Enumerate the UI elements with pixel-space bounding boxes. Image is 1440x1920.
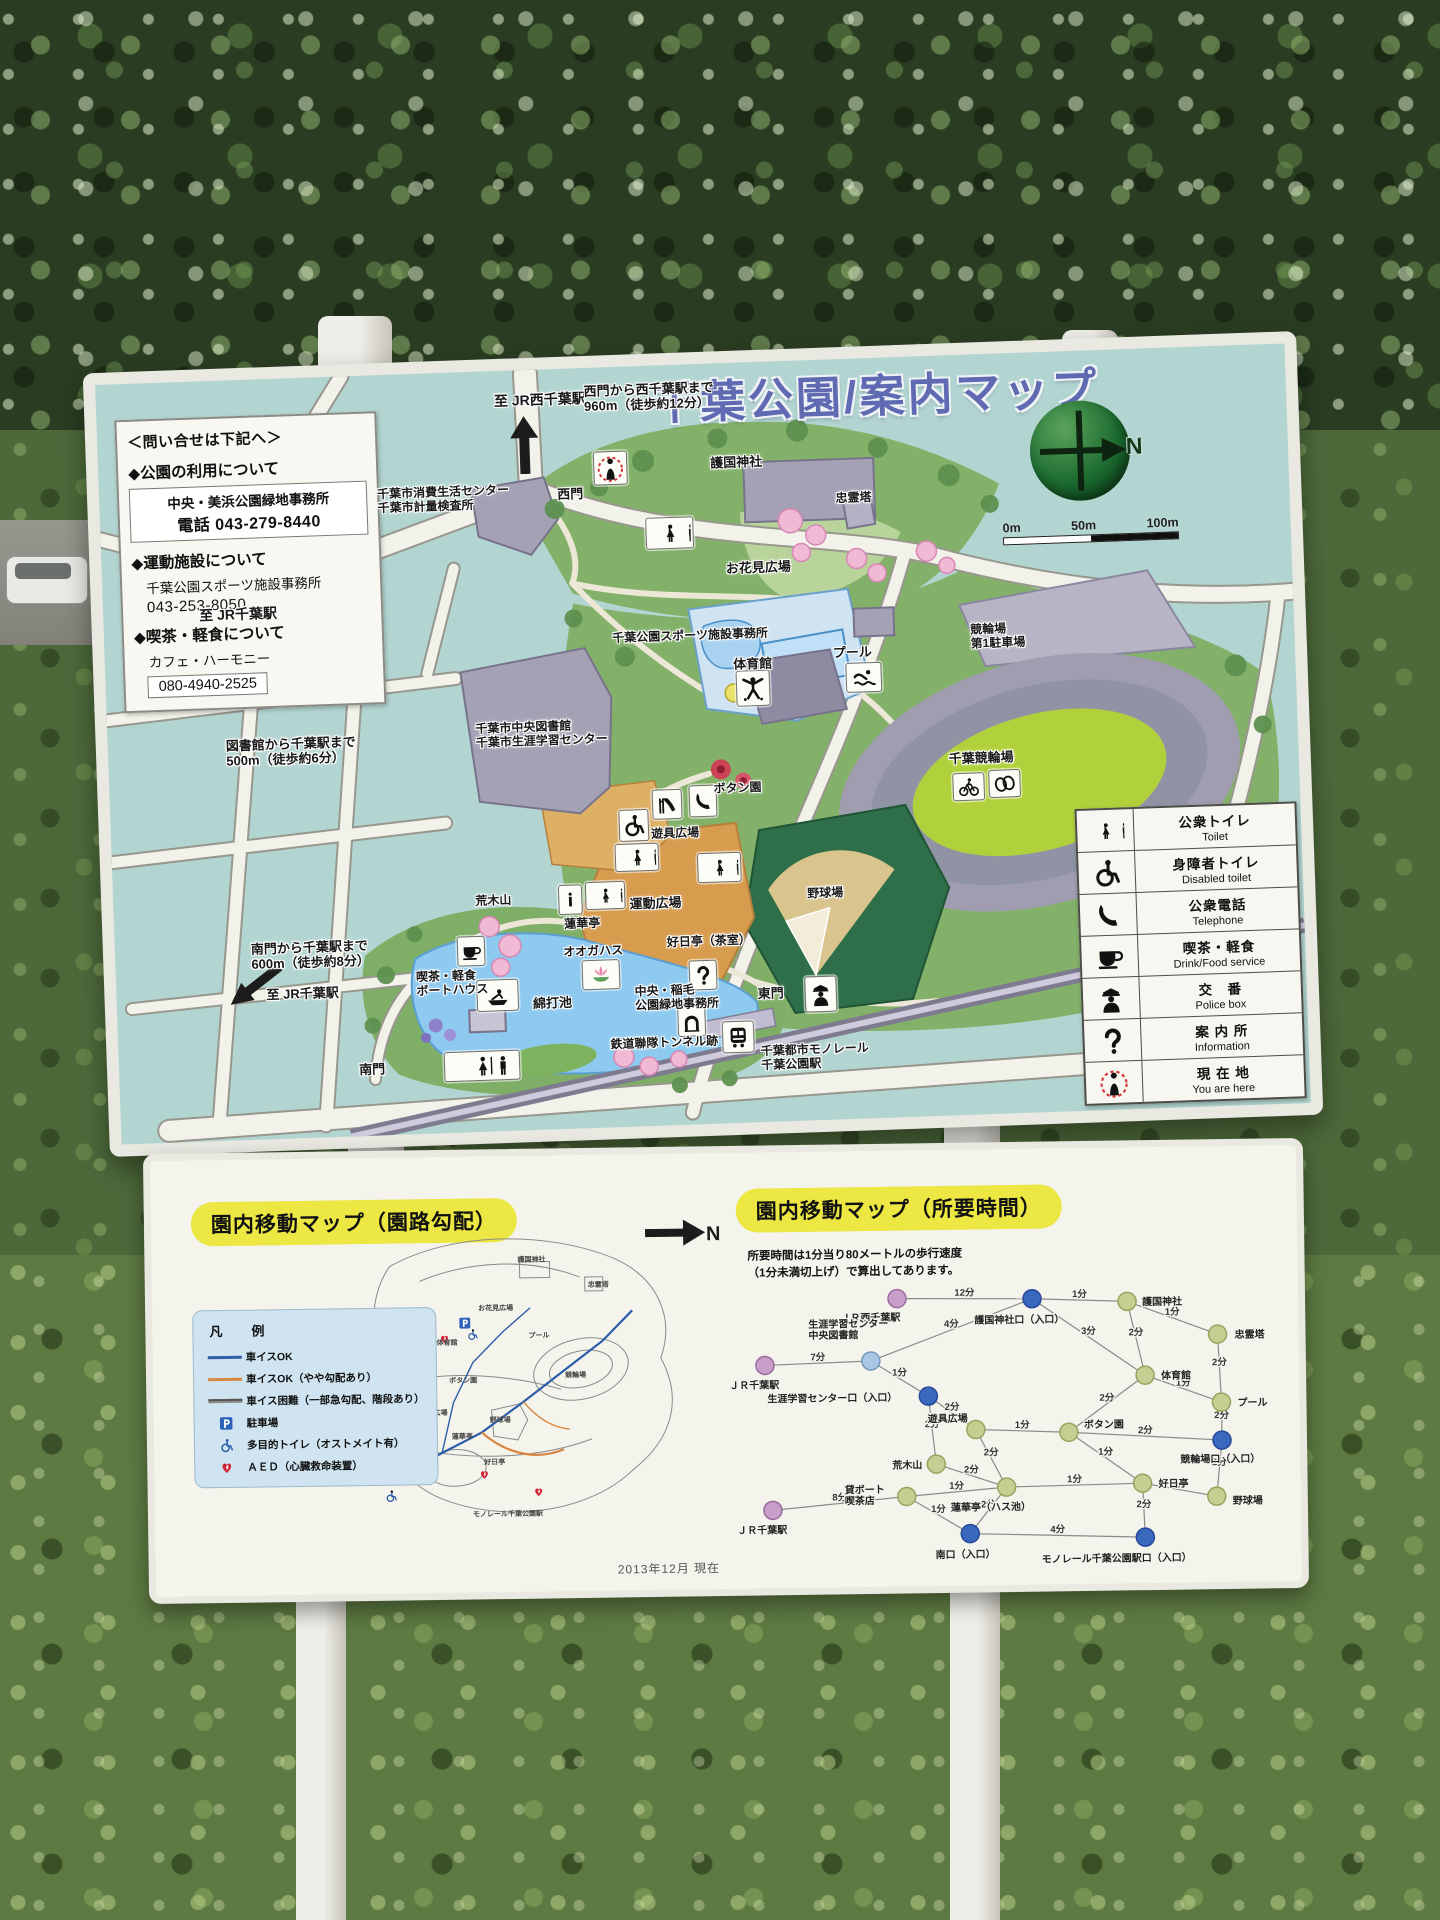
north-direction-arrow — [508, 416, 540, 475]
network-node-entrance — [1136, 1528, 1154, 1546]
network-node-entrance — [919, 1387, 937, 1405]
monorail-station-icon — [722, 1020, 755, 1053]
network-edge-minutes: 2分 — [964, 1463, 979, 1475]
minimap-label: 忠霊塔 — [588, 1280, 610, 1289]
you-are-here-icon — [593, 450, 628, 485]
network-node-landmark — [862, 1352, 880, 1370]
drink-food-icon — [1081, 935, 1139, 978]
network-node-station — [756, 1356, 774, 1374]
drink-food-icon — [457, 936, 486, 967]
parking-icon — [205, 1415, 247, 1431]
network-node-entrance — [1213, 1431, 1231, 1449]
map-label: プール — [833, 644, 873, 661]
network-node-label: 護国神社 — [1142, 1295, 1182, 1309]
network-node-label: 荒木山 — [891, 1458, 922, 1471]
network-edge-minutes: 2分 — [984, 1446, 999, 1458]
toilet-icon — [645, 516, 694, 550]
network-node-facility — [1118, 1292, 1136, 1310]
toilet-icon — [1077, 809, 1135, 852]
track-wheels-icon — [988, 769, 1021, 798]
contact-section-title: ◆公園の利用について — [128, 454, 367, 484]
map-label: 遊具広場 — [651, 825, 699, 841]
minimap-label: ボタン園 — [449, 1375, 477, 1384]
network-edge-minutes: 1分 — [1098, 1446, 1113, 1458]
minimap-label: プール — [528, 1330, 549, 1339]
minimap-label: 蓮華亭 — [452, 1432, 473, 1441]
network-edge-minutes: 2分 — [945, 1401, 960, 1413]
slope-legend-panel: 凡 例 車イスOK 車イスOK（やや勾配あり） 車イス困難（一部急勾配、階段あり… — [192, 1307, 438, 1488]
map-legend-table: 公衆トイレToilet 身障者トイレDisabled toilet 公衆電話Te… — [1074, 801, 1306, 1106]
network-node-label: 競輪場口（入口） — [1180, 1452, 1260, 1466]
map-label: 千葉都市モノレール 千葉公園駅 — [761, 1040, 870, 1072]
map-label: 南門 — [359, 1061, 386, 1077]
map-label: ボタン園 — [713, 780, 761, 796]
map-label: 至 JR西千葉駅 — [494, 390, 586, 410]
network-node-station — [888, 1289, 906, 1307]
map-label: 荒木山 — [475, 893, 511, 908]
network-node-station — [764, 1501, 782, 1519]
network-edge-minutes: 1分 — [931, 1503, 946, 1515]
network-edge-minutes: 1分 — [1015, 1419, 1030, 1431]
toilet-wheelchair-icon — [444, 1050, 521, 1083]
network-node-label: 遊具広場 — [928, 1412, 968, 1426]
network-node-entrance — [961, 1524, 979, 1542]
wheelchair-slope-line — [204, 1377, 246, 1381]
aed-icon — [205, 1459, 247, 1475]
network-node-label: ボタン園 — [1084, 1417, 1124, 1431]
map-label: 綿打池 — [533, 995, 573, 1012]
park-sign-photo: 千葉公園/案内マップ ＜問い合せは下記へ＞ ◆公園の利用について 中央・美浜公園… — [0, 0, 1440, 1920]
wheelchair-difficult-line — [204, 1399, 246, 1404]
cyclist-icon — [952, 772, 985, 801]
you-are-here-icon — [1085, 1061, 1143, 1104]
network-node-label: 野球場 — [1233, 1494, 1263, 1507]
network-edge-minutes: 1分 — [949, 1480, 964, 1492]
information-icon — [558, 884, 583, 915]
network-node-entrance — [1023, 1290, 1041, 1308]
network-node-label: モノレール千葉公園駅口（入口） — [1042, 1551, 1192, 1566]
network-node-label: プール — [1237, 1395, 1267, 1408]
parked-car — [6, 556, 88, 604]
network-node-facility — [998, 1478, 1016, 1496]
network-node-facility — [927, 1455, 945, 1473]
minimap-label: 好日亭 — [483, 1457, 505, 1466]
map-label: 東門 — [757, 985, 784, 1001]
map-label: 西門 — [557, 486, 584, 502]
map-label: 中央・稲毛 公園緑地事務所 — [634, 982, 719, 1013]
network-node-label: 好日亭 — [1158, 1477, 1189, 1490]
network-node-label: 生涯学習センター中央図書館 — [808, 1317, 888, 1342]
network-edge-minutes: 1分 — [892, 1366, 907, 1378]
network-node-facility — [1208, 1325, 1226, 1343]
minimap-label: 競輪場 — [565, 1370, 586, 1379]
map-label: 護国神社 — [710, 454, 763, 471]
walking-time-map-sign: 園内移動マップ（園路勾配） 園内移動マップ（所要時間） N 所要時間は1分当り8… — [143, 1138, 1309, 1604]
map-label: 千葉市消費生活センター 千葉市計量検査所 — [377, 483, 510, 516]
network-edge-minutes: 3分 — [1081, 1325, 1096, 1337]
network-edge-minutes: 2分 — [1212, 1356, 1227, 1368]
network-node-facility — [1208, 1487, 1226, 1505]
lotus-icon — [581, 959, 620, 990]
compass-north-label: N — [1125, 432, 1143, 460]
gymnast-icon — [735, 670, 770, 707]
map-label: 西門から西千葉駅まで 960m（徒歩約12分） — [583, 379, 714, 414]
information-icon — [1084, 1019, 1142, 1062]
network-node-facility — [1133, 1474, 1151, 1492]
network-edge-minutes: 2分 — [1138, 1424, 1153, 1436]
network-edge-minutes: 1分 — [1072, 1288, 1087, 1300]
minimap-label: 護国神社 — [517, 1255, 545, 1264]
wheelchair-icon — [618, 809, 649, 842]
map-label: お花見広場 — [726, 559, 792, 577]
network-edge-minutes: 2分 — [1136, 1498, 1151, 1510]
network-edge-minutes: 2分 — [1099, 1392, 1114, 1404]
wheelchair-ok-line — [204, 1355, 246, 1359]
slide-icon — [652, 789, 683, 820]
network-node-label: ＪＲ千葉駅 — [737, 1523, 788, 1537]
network-edge-minutes: 12分 — [954, 1287, 975, 1299]
map-label: 忠霊塔 — [835, 490, 871, 505]
network-edge-minutes: 4分 — [944, 1318, 959, 1330]
network-node-facility — [1060, 1423, 1078, 1441]
network-node-label: 体育館 — [1161, 1369, 1191, 1382]
network-node-facility — [1212, 1393, 1230, 1411]
network-node-label: 生涯学習センター口（入口） — [767, 1391, 897, 1406]
disabled-toilet-icon — [1078, 851, 1136, 894]
compass-icon — [1028, 399, 1131, 502]
map-label: 競輪場 第1駐車場 — [970, 621, 1026, 651]
network-edge-minutes: 4分 — [1050, 1523, 1065, 1535]
network-node-facility — [1136, 1366, 1154, 1384]
network-node-facility — [967, 1420, 985, 1438]
contact-info-box: ＜問い合せは下記へ＞ ◆公園の利用について 中央・美浜公園緑地事務所 電話 04… — [114, 411, 386, 713]
map-label: オオガハス — [563, 943, 623, 959]
map-label: 蓮華亭 — [564, 916, 600, 931]
sign-post-cap-left — [318, 316, 392, 366]
map-label: 喫茶・軽食 ボートハウス — [416, 968, 489, 999]
minimap-label: お花見広場 — [478, 1303, 513, 1312]
police-box-icon — [1082, 977, 1140, 1020]
network-node-label: 南口（入口） — [935, 1547, 995, 1561]
network-edge-minutes: 7分 — [810, 1351, 825, 1363]
network-node-label: 護国神社口（入口） — [974, 1312, 1064, 1326]
swimmer-icon — [845, 662, 882, 693]
contact-section-title: ◆運動施設について — [131, 544, 370, 574]
map-label: 至 JR千葉駅 — [199, 605, 277, 624]
network-edge-minutes: 1分 — [1067, 1473, 1082, 1485]
minimap-label: 体育館 — [437, 1338, 458, 1347]
network-node-label: 貸ボート喫茶店 — [844, 1483, 885, 1508]
map-label: 運動広場 — [629, 895, 682, 912]
network-node-label: ＪＲ千葉駅 — [729, 1378, 780, 1392]
telephone-icon — [1079, 893, 1137, 936]
date-note: 2013年12月 現在 — [618, 1559, 721, 1577]
toilet-icon — [614, 843, 659, 873]
toilet-icon — [585, 881, 626, 910]
multipurpose-toilet-icon — [205, 1437, 247, 1453]
toilet-icon — [697, 852, 742, 884]
police-box-icon — [804, 975, 837, 1012]
map-label: 南門から千葉駅まで 600m（徒歩約8分） — [251, 938, 370, 973]
network-node-facility — [898, 1487, 916, 1505]
time-map-title: 園内移動マップ（所要時間） — [735, 1184, 1062, 1233]
park-guide-map-sign: 千葉公園/案内マップ ＜問い合せは下記へ＞ ◆公園の利用について 中央・美浜公園… — [83, 331, 1324, 1157]
contact-office-box: 中央・美浜公園緑地事務所 電話 043-279-8440 — [129, 481, 369, 543]
network-edge-minutes: 2分 — [1129, 1326, 1144, 1338]
map-label: 好日亭（茶室） — [667, 932, 751, 949]
map-label: 体育館 — [733, 656, 773, 673]
network-node-label: 忠霊塔 — [1234, 1327, 1265, 1340]
network-node-label: 蓮華亭（ハス池） — [951, 1500, 1031, 1514]
map-label: 千葉市中央図書館 千葉市生涯学習センター — [475, 717, 608, 750]
map-label: 至 JR千葉駅 — [266, 985, 339, 1003]
map-label: 野球場 — [807, 885, 843, 900]
minimap-label: 野球場 — [490, 1415, 511, 1424]
map-label: 千葉競輪場 — [948, 749, 1014, 767]
legend-heading: 凡 例 — [209, 1318, 425, 1340]
contact-heading: ＜問い合せは下記へ＞ — [127, 424, 366, 453]
map-label: 図書館から千葉駅まで 500m（徒歩約6分） — [226, 734, 357, 769]
walking-time-network: 12分1分1分3分2分2分1分7分1分4分2分2分1分2分2分1分2分2分1分1… — [712, 1263, 1294, 1573]
